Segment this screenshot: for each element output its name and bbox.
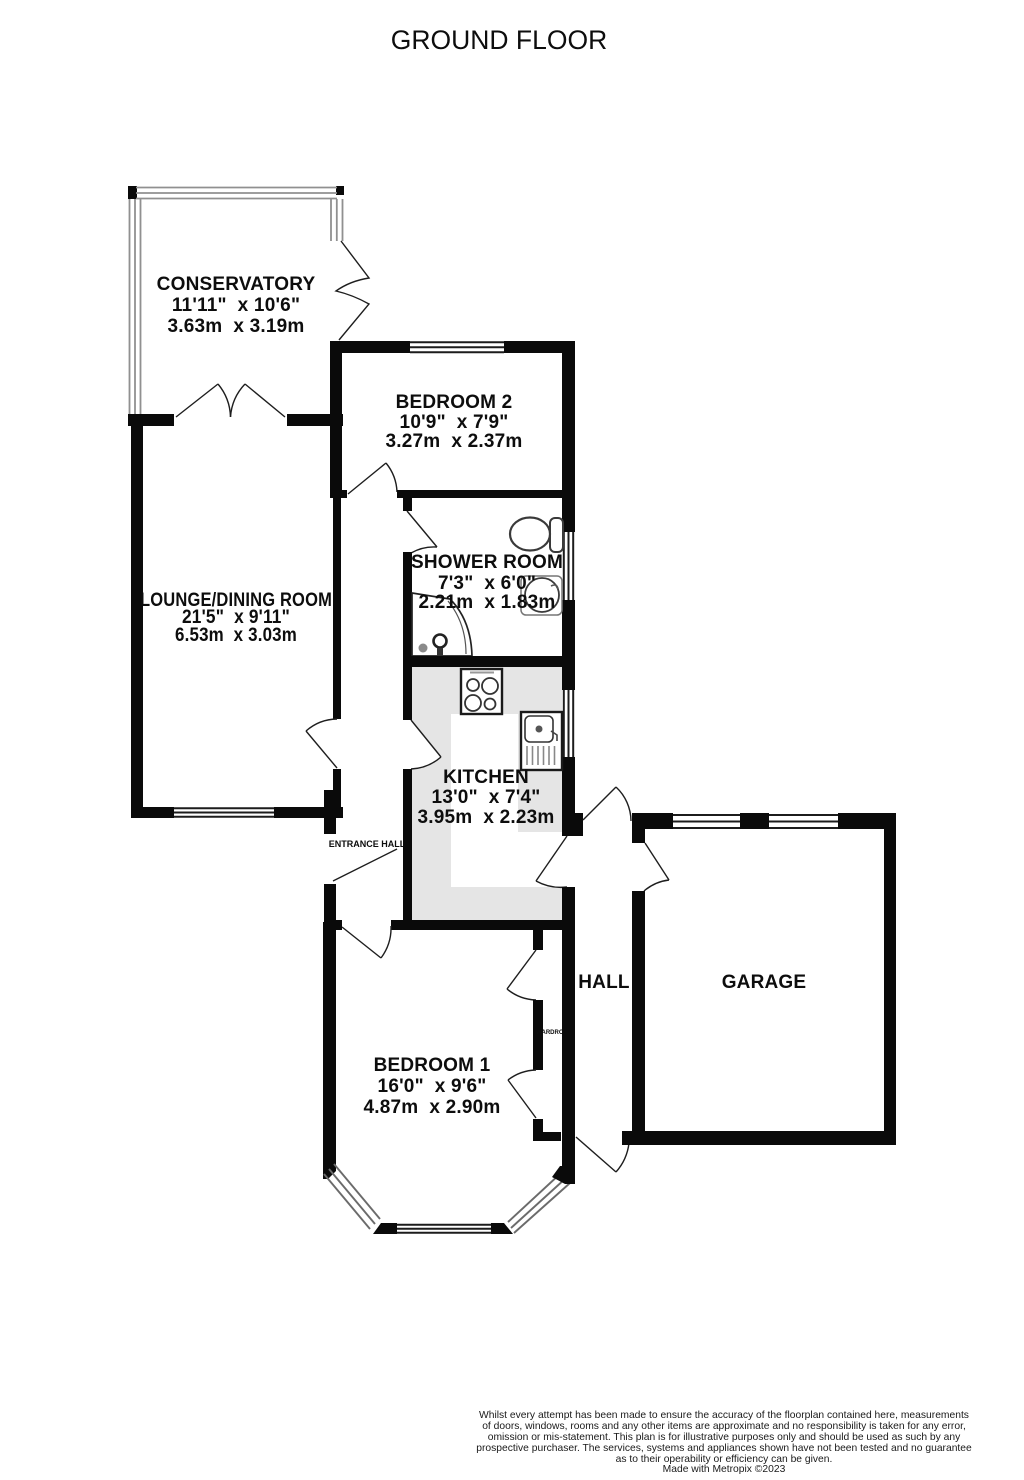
svg-text:3.63m x 3.19m: 3.63m x 3.19m — [168, 316, 305, 337]
svg-text:2.21m x 1.83m: 2.21m x 1.83m — [419, 592, 556, 613]
svg-text:7'3" x 6'0": 7'3" x 6'0" — [438, 573, 536, 594]
svg-text:16'0" x 9'6": 16'0" x 9'6" — [378, 1076, 487, 1097]
svg-text:13'0" x 7'4": 13'0" x 7'4" — [432, 787, 541, 808]
svg-text:BEDROOM 1: BEDROOM 1 — [374, 1055, 491, 1076]
svg-text:GARAGE: GARAGE — [722, 972, 807, 993]
svg-text:prospective purchaser. The ser: prospective purchaser. The services, sys… — [476, 1443, 972, 1454]
svg-text:BEDROOM 2: BEDROOM 2 — [396, 392, 513, 413]
svg-text:11'11" x 10'6": 11'11" x 10'6" — [172, 295, 300, 316]
svg-text:Made with Metropix ©2023: Made with Metropix ©2023 — [663, 1464, 786, 1475]
svg-text:SHOWER ROOM: SHOWER ROOM — [411, 552, 563, 573]
svg-text:GROUND FLOOR: GROUND FLOOR — [391, 25, 607, 55]
svg-text:10'9" x 7'9": 10'9" x 7'9" — [400, 412, 509, 433]
svg-text:KITCHEN: KITCHEN — [443, 767, 529, 788]
svg-text:6.53m x 3.03m: 6.53m x 3.03m — [175, 625, 297, 646]
svg-text:CONSERVATORY: CONSERVATORY — [157, 274, 316, 295]
svg-text:3.95m x 2.23m: 3.95m x 2.23m — [418, 807, 555, 828]
svg-text:3.27m x 2.37m: 3.27m x 2.37m — [386, 431, 523, 452]
svg-text:Whilst every attempt has been: Whilst every attempt has been made to en… — [479, 1410, 969, 1421]
svg-text:ENTRANCE HALL: ENTRANCE HALL — [329, 839, 406, 849]
svg-text:omission or mis-statement. Thi: omission or mis-statement. This plan is … — [488, 1432, 961, 1443]
svg-text:4.87m x 2.90m: 4.87m x 2.90m — [364, 1097, 501, 1118]
svg-text:HALL: HALL — [578, 972, 630, 993]
svg-text:of doors, windows, rooms and a: of doors, windows, rooms and any other i… — [482, 1421, 966, 1432]
